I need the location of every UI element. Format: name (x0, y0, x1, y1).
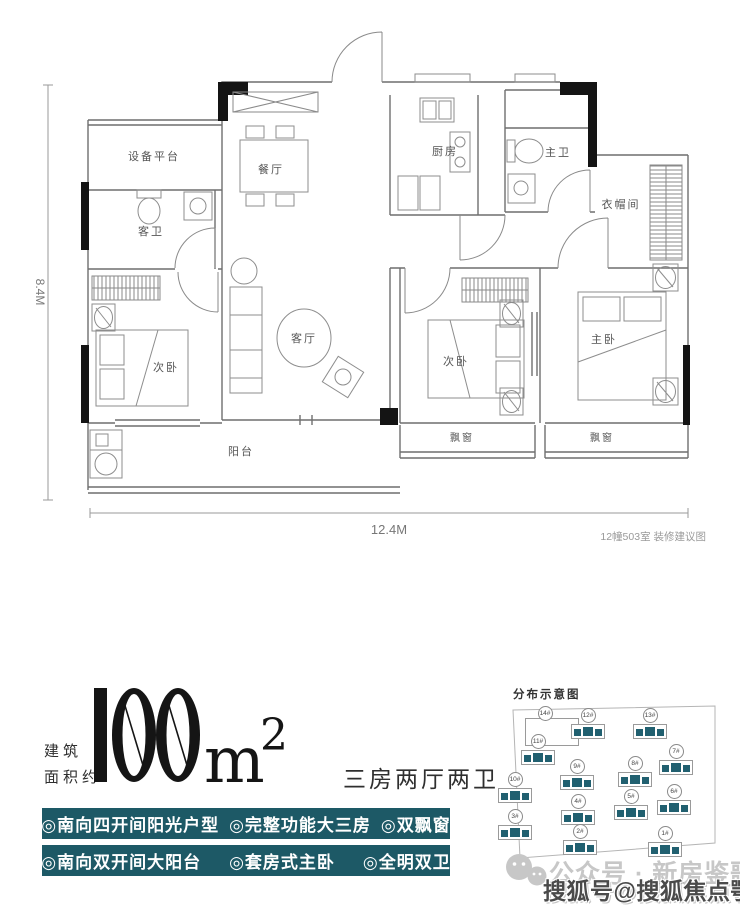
feature-item: ◎全明双卫 (363, 848, 451, 873)
building-12: 12# (568, 708, 608, 739)
room-label-bay-left: 飘窗 (450, 431, 474, 444)
building-10: 10# (495, 772, 535, 803)
plan-caption: 12幢503室 装修建议图 (600, 530, 706, 543)
building-9: 9# (557, 759, 597, 790)
room-label-bay-right: 飘窗 (590, 431, 614, 444)
room-label-living: 客厅 (291, 331, 317, 345)
building-6: 6# (654, 784, 694, 815)
room-label-cloak: 衣帽间 (602, 197, 641, 211)
floor-plan-svg: 设备平台 餐厅 客卫 厨房 主卫 衣帽间 客厅 次卧 次卧 主卧 阳台 飘窗 飘… (0, 0, 740, 560)
room-label-guest-bath: 客卫 (138, 224, 164, 238)
area-value-graphic: m 2 (92, 686, 307, 786)
building-5: 5# (611, 789, 651, 820)
building-3: 3# (495, 809, 535, 840)
room-label-master-bath: 主卫 (545, 146, 571, 159)
room-label-kitchen: 厨房 (432, 145, 458, 158)
area-value: 100 m 2 (92, 686, 307, 791)
feature-item: ◎双飘窗 (381, 811, 451, 836)
dimension-height-label: 8.4M (33, 279, 47, 306)
walls (88, 82, 688, 493)
building-7: 7# (656, 744, 696, 775)
area-sup: 2 (260, 710, 288, 761)
wechat-icon (500, 852, 548, 892)
room-label-balcony: 阳台 (228, 444, 254, 458)
feature-banner-row2: ◎南向双开间大阳台 ◎套房式主卧 ◎全明双卫 (42, 845, 450, 876)
feature-banner-row1: ◎南向四开间阳光户型 ◎完整功能大三房 ◎双飘窗 (42, 808, 450, 839)
building-11: 11# (518, 734, 558, 765)
building-13: 13# (630, 708, 670, 739)
building-2: 2# (560, 824, 600, 855)
room-label-bedroom2-left: 次卧 (153, 360, 179, 374)
building-8: 8# (615, 756, 655, 787)
layout-type: 三房两厅两卫 (343, 760, 499, 794)
feature-item: ◎套房式主卧 (229, 848, 335, 873)
feature-item: ◎完整功能大三房 (229, 811, 371, 836)
feature-item: ◎南向四开间阳光户型 (41, 811, 219, 836)
feature-item: ◎南向双开间大阳台 (41, 848, 201, 873)
room-label-equipment: 设备平台 (128, 149, 180, 163)
building-1: 1# (645, 826, 685, 857)
room-label-master-bedroom: 主卧 (591, 333, 617, 346)
building-4: 4# (558, 794, 598, 825)
area-unit: m (204, 724, 265, 786)
dimension-width-label: 12.4M (371, 522, 407, 537)
room-label-bedroom2-right: 次卧 (443, 354, 469, 368)
room-label-dining: 餐厅 (258, 162, 284, 176)
